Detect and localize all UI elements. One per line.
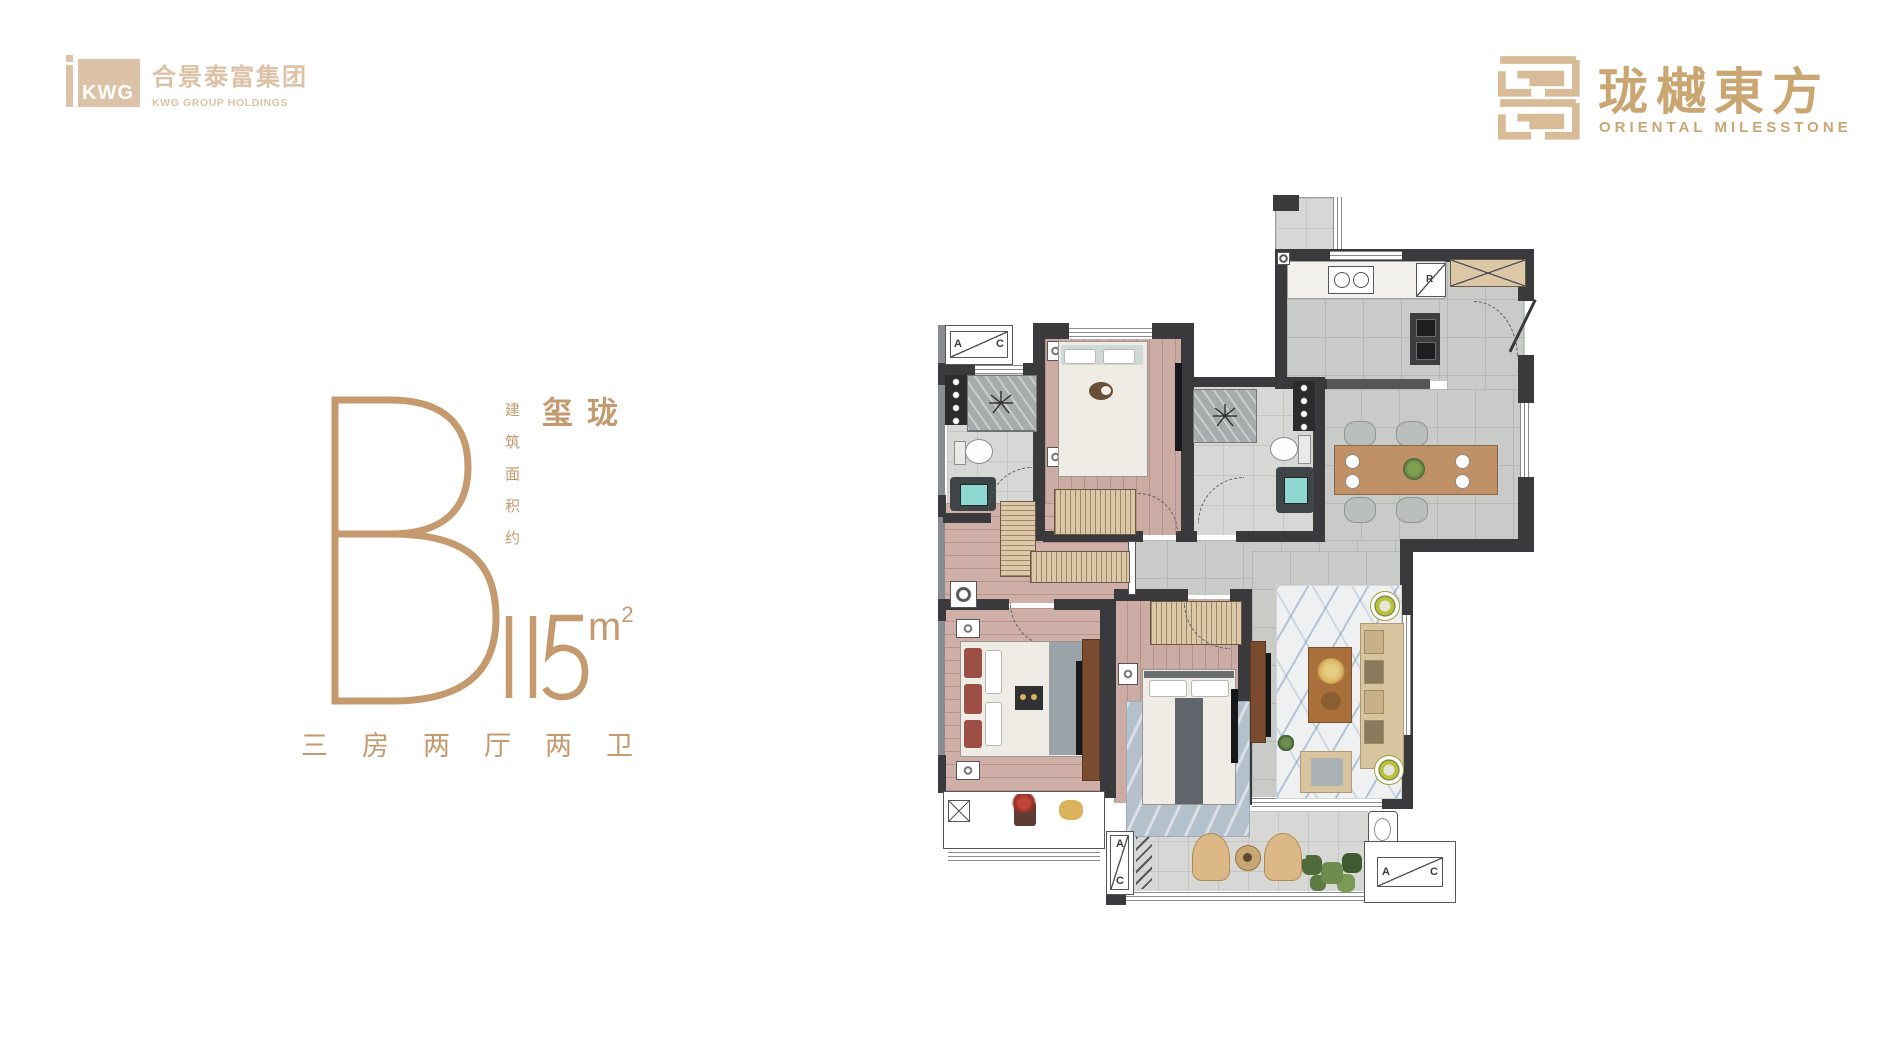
master-bay-glass <box>948 849 1100 861</box>
entry-cabinet <box>1450 259 1526 287</box>
wall-niche-corner <box>1273 195 1299 211</box>
wall-bedroom2-topright <box>1152 323 1184 339</box>
kwg-name-en: KWG GROUP HOLDINGS <box>152 97 308 109</box>
living-plant <box>1278 735 1294 751</box>
washing-machine <box>950 581 977 608</box>
kwg-logo-bar <box>66 65 73 107</box>
plumbing-shaft-bath1 <box>945 375 967 425</box>
shower2 <box>1193 389 1257 443</box>
master-nightstand-1 <box>956 619 980 638</box>
bedroom3-pillow-1 <box>1149 680 1187 697</box>
sofa-pillow-3 <box>1364 690 1384 714</box>
sink1 <box>960 484 988 506</box>
plate-1 <box>1345 454 1360 469</box>
balcony-chair-2 <box>1264 833 1302 881</box>
side-table-1 <box>1370 591 1400 621</box>
bath1-window <box>975 364 1023 374</box>
bedroom3-pillow-2 <box>1191 680 1229 697</box>
sofa <box>1360 623 1404 769</box>
ac-letter-a: A <box>954 338 962 350</box>
wall-kitchen-left <box>1275 249 1287 381</box>
wall-dining-right <box>1518 477 1534 541</box>
wall-step <box>1400 539 1534 552</box>
ac-platform-balcony-left: A C <box>1106 831 1134 895</box>
bedroom2-tv <box>1175 363 1182 451</box>
fridge-label: R <box>1426 274 1433 285</box>
kwg-logo-mark: KWG <box>66 55 142 107</box>
wall-bath1-top2 <box>1023 363 1039 375</box>
niche-window <box>1333 197 1342 250</box>
area-value: 115 <box>500 610 592 702</box>
area-unit: m2 <box>588 602 634 650</box>
master-tv-console <box>1082 639 1100 781</box>
bay-pillow-yellow <box>1059 800 1083 820</box>
coffee-table-bowl <box>1321 692 1341 710</box>
wall-bedroom3-top1 <box>1114 589 1188 601</box>
balcony-plants <box>1302 855 1306 859</box>
basin-bowl <box>1374 818 1391 841</box>
project-name-en: ORIENTAL MILESSTONE <box>1599 119 1852 136</box>
plumbing-shaft-bath2 <box>1293 381 1315 431</box>
sink-bowl-2 <box>1353 272 1369 288</box>
wall-bath1-bottom1 <box>943 513 991 523</box>
shower-head-icon <box>988 390 1014 416</box>
wall-entry-right-bottom <box>1518 355 1534 403</box>
wall-master-top2 <box>1054 599 1116 610</box>
master-pillow-red-3 <box>964 720 982 748</box>
floor-plan: A C <box>930 195 1570 920</box>
master-bay-window <box>943 791 1105 849</box>
shower1-glass <box>967 430 1035 432</box>
ac-label-box-left: A C <box>1110 835 1129 890</box>
ac-letter-a: A <box>1116 838 1124 850</box>
balcony-table <box>1235 845 1261 871</box>
bedroom3-tv <box>1231 689 1238 763</box>
living-tv <box>1266 653 1271 737</box>
stove-column <box>1410 313 1440 365</box>
plate-2 <box>1345 474 1360 489</box>
dining-chair-4 <box>1396 497 1428 523</box>
balcony-folding-door <box>1136 837 1152 889</box>
dining-chair-2 <box>1396 421 1428 447</box>
project-seal-icon: 珑樾東方 <box>1494 54 1582 140</box>
vanity2 <box>1276 467 1314 513</box>
bedroom3-headboard <box>1144 671 1234 678</box>
armchair <box>1300 751 1352 793</box>
balcony-rail-window <box>1126 891 1372 901</box>
unit-type-letter: B <box>328 393 503 708</box>
coffee-table <box>1308 647 1352 723</box>
armchair-cushion <box>1311 758 1343 786</box>
kwg-name-cn: 合景泰富集团 <box>152 57 308 92</box>
bedroom3-runner <box>1175 698 1203 804</box>
master-tv <box>1076 661 1082 755</box>
wall-bath2-bottom2 <box>1236 531 1325 542</box>
bedroom2-wardrobe <box>1054 489 1136 535</box>
kwg-logo-letters: KWG <box>82 82 134 105</box>
corridor-closet-horizontal <box>1030 551 1130 583</box>
master-bed-tray <box>1015 686 1043 710</box>
project-name-cn: 珑樾東方 <box>1598 52 1830 124</box>
bedroom2-pillow-1 <box>1064 349 1096 364</box>
tray-dot-2 <box>1031 694 1037 700</box>
bedroom2-window <box>1069 325 1152 337</box>
toilet2 <box>1270 437 1298 461</box>
master-pillow-red-2 <box>964 684 982 714</box>
wall-master-bedroom3 <box>1100 610 1116 798</box>
layout-spec: 三房两厅两卫 <box>301 724 667 763</box>
dining-plant <box>1403 458 1425 480</box>
dog-on-bed <box>1089 382 1113 400</box>
toilet2-tank <box>1298 435 1311 464</box>
sofa-pillow-4 <box>1364 720 1384 744</box>
bay-x-box <box>948 800 970 822</box>
area-prefix-vertical: 建筑面积约 <box>501 402 522 577</box>
ac-letter-c: C <box>1116 875 1124 887</box>
ac-letter-c: C <box>996 338 1004 350</box>
kwg-logo-text: 合景泰富集团 KWG GROUP HOLDINGS <box>152 57 308 109</box>
wall-balcony-bl <box>1106 895 1126 905</box>
wall-bedroom2-topleft <box>1043 323 1069 339</box>
shower-head-icon <box>1212 403 1238 429</box>
sofa-pillow-2 <box>1364 660 1384 684</box>
dining-table <box>1334 445 1498 495</box>
tray-dot-1 <box>1020 694 1026 700</box>
kitchen-passthrough-counter <box>1326 379 1430 389</box>
plate-4 <box>1455 474 1470 489</box>
master-pillow-white-1 <box>985 650 1002 694</box>
balcony-table-center <box>1243 853 1252 862</box>
shower1 <box>967 375 1037 432</box>
plate-3 <box>1455 454 1470 469</box>
toilet1 <box>965 439 993 464</box>
dining-chair-1 <box>1344 421 1376 447</box>
ac-letter-a: A <box>1382 866 1390 878</box>
ac-platform-topleft: A C <box>945 325 1013 365</box>
sofa-pillow-1 <box>1364 630 1384 654</box>
unit-name-vertical: 珑玺 <box>532 396 622 531</box>
kwg-logo-dot <box>66 55 73 62</box>
master-pillow-white-2 <box>985 702 1002 746</box>
wall-bath2-bottom1 <box>1181 531 1197 542</box>
side-table-2 <box>1374 755 1404 785</box>
flower-red <box>1010 794 1038 812</box>
living-tv-console <box>1250 641 1266 743</box>
coffee-table-decor <box>1317 658 1345 684</box>
entry-window <box>1520 403 1532 477</box>
area-exponent: 2 <box>621 602 633 627</box>
balcony-chair-1 <box>1192 833 1230 881</box>
dining-chair-3 <box>1344 497 1376 523</box>
kitchen-window <box>1330 251 1402 260</box>
bedroom2-pillow-2 <box>1103 349 1135 364</box>
bedroom2-bed <box>1058 341 1148 477</box>
fridge: R <box>1416 263 1446 297</box>
wall-chunk-left4 <box>938 755 946 793</box>
master-nightstand-2 <box>956 761 980 780</box>
dog-patch <box>1101 386 1111 395</box>
wall-outer-left <box>938 325 945 793</box>
oven-1 <box>1416 319 1436 337</box>
oven-2 <box>1416 342 1436 360</box>
poster-page: KWG 合景泰富集团 KWG GROUP HOLDINGS 珑樾東方 珑樾東方 … <box>0 0 1890 1063</box>
bedroom3-nightstand <box>1118 663 1138 685</box>
master-pillow-red-1 <box>964 648 982 678</box>
sink2 <box>1284 477 1308 504</box>
ac-label-box-topleft: A C <box>950 331 1008 358</box>
kitchen-sink <box>1328 266 1374 294</box>
kwg-logo-square: KWG <box>78 59 140 107</box>
gas-meter <box>1277 252 1290 265</box>
sink-bowl-1 <box>1334 272 1350 288</box>
master-bed <box>960 641 1090 757</box>
ac-platform-bottom-right: A C <box>1364 841 1456 903</box>
ac-label-box-right: A C <box>1377 857 1443 887</box>
ac-letter-c: C <box>1430 866 1438 878</box>
bedroom3-bed <box>1142 669 1236 805</box>
